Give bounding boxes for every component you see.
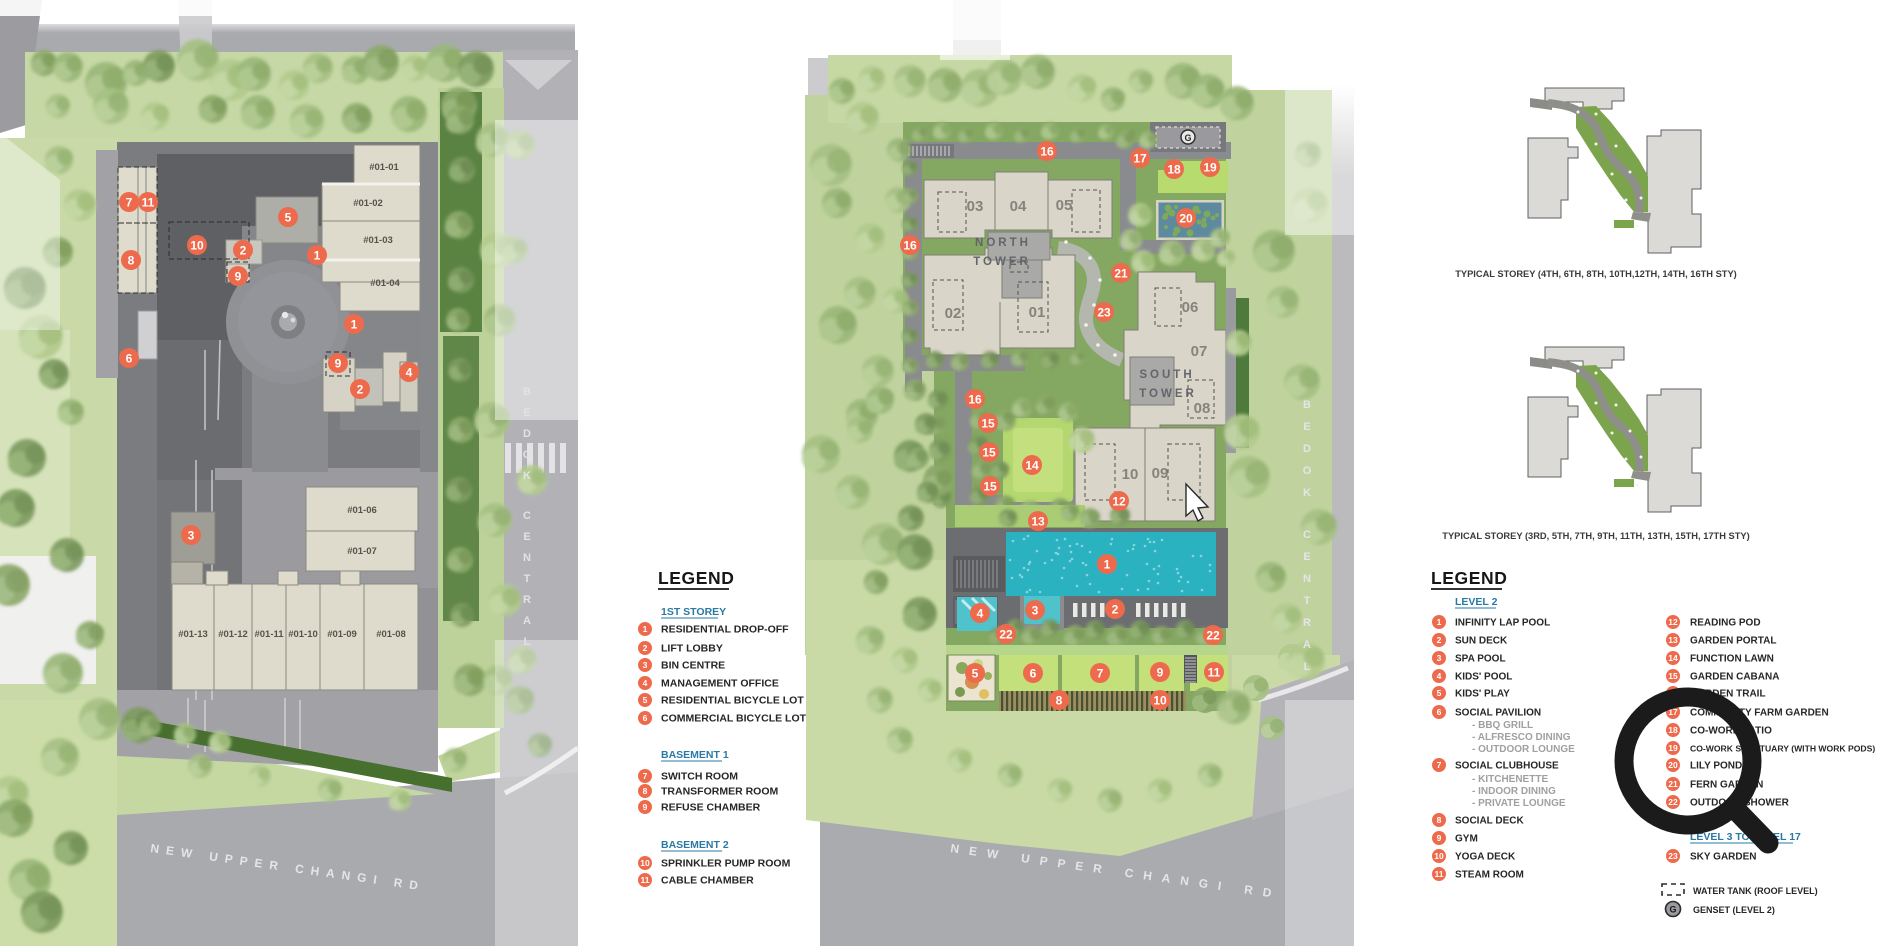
svg-text:LEVEL 2: LEVEL 2 [1455, 596, 1498, 608]
svg-text:MANAGEMENT OFFICE: MANAGEMENT OFFICE [661, 678, 779, 690]
svg-text:- KITCHENETTE: - KITCHENETTE [1472, 774, 1548, 785]
svg-text:TYPICAL STOREY (3RD, 5TH, 7TH,: TYPICAL STOREY (3RD, 5TH, 7TH, 9TH, 11TH… [1442, 531, 1749, 541]
svg-text:22: 22 [1206, 628, 1220, 642]
svg-text:22: 22 [999, 627, 1013, 641]
svg-text:8: 8 [643, 786, 648, 796]
svg-text:6: 6 [1437, 707, 1442, 717]
svg-text:21: 21 [1668, 779, 1678, 789]
svg-text:TOWER: TOWER [973, 256, 1031, 268]
svg-text:K: K [1303, 487, 1311, 499]
svg-text:5: 5 [285, 210, 292, 224]
svg-text:D: D [1303, 443, 1311, 455]
svg-text:LEGEND: LEGEND [658, 568, 735, 588]
svg-text:O: O [1303, 465, 1312, 477]
svg-text:E: E [1303, 551, 1310, 563]
svg-text:10: 10 [1153, 693, 1167, 707]
svg-text:05: 05 [1056, 197, 1073, 214]
svg-text:11: 11 [1208, 665, 1221, 679]
svg-text:SKY GARDEN: SKY GARDEN [1690, 852, 1757, 863]
svg-text:STEAM ROOM: STEAM ROOM [1455, 870, 1524, 881]
svg-text:23: 23 [1668, 851, 1678, 861]
svg-text:9: 9 [1437, 833, 1442, 843]
svg-text:9: 9 [335, 356, 342, 370]
svg-text:CO-WORK SANCTUARY (WITH WORK P: CO-WORK SANCTUARY (WITH WORK PODS) [1690, 744, 1875, 754]
svg-text:REFUSE CHAMBER: REFUSE CHAMBER [661, 802, 761, 814]
svg-text:1: 1 [1104, 557, 1111, 571]
svg-text:4: 4 [977, 606, 984, 620]
svg-text:INFINITY LAP POOL: INFINITY LAP POOL [1455, 618, 1550, 629]
svg-text:E: E [523, 407, 530, 419]
svg-text:#01-01: #01-01 [369, 162, 399, 173]
svg-text:20: 20 [1179, 211, 1193, 225]
svg-text:- OUTDOOR LOUNGE: - OUTDOOR LOUNGE [1472, 744, 1575, 755]
svg-text:23: 23 [1097, 305, 1111, 319]
svg-text:16: 16 [1040, 144, 1054, 158]
svg-text:SOUTH: SOUTH [1139, 369, 1194, 381]
svg-text:NORTH: NORTH [975, 237, 1031, 249]
svg-text:RESIDENTIAL DROP-OFF: RESIDENTIAL DROP-OFF [661, 624, 789, 636]
svg-text:KIDS' PLAY: KIDS' PLAY [1455, 689, 1510, 700]
svg-text:18: 18 [1167, 162, 1181, 176]
svg-text:LIFT LOBBY: LIFT LOBBY [661, 643, 723, 655]
svg-text:7: 7 [643, 771, 648, 781]
svg-text:#01-07: #01-07 [347, 546, 377, 557]
svg-text:9: 9 [1157, 665, 1164, 679]
svg-text:C: C [523, 510, 531, 522]
svg-text:3: 3 [1032, 603, 1039, 617]
svg-text:04: 04 [1010, 198, 1027, 215]
svg-text:B: B [1303, 399, 1311, 411]
svg-text:SPRINKLER PUMP ROOM: SPRINKLER PUMP ROOM [661, 858, 791, 870]
svg-text:A: A [523, 615, 531, 627]
svg-text:A: A [1303, 639, 1311, 651]
svg-text:3: 3 [1437, 653, 1442, 663]
svg-text:20: 20 [1668, 760, 1678, 770]
svg-text:01: 01 [1029, 304, 1046, 321]
svg-text:CABLE CHAMBER: CABLE CHAMBER [661, 875, 754, 887]
svg-text:16: 16 [968, 392, 982, 406]
svg-text:SOCIAL PAVILION: SOCIAL PAVILION [1455, 708, 1541, 719]
svg-text:2: 2 [240, 243, 247, 257]
svg-text:T: T [524, 573, 531, 585]
svg-text:- PRIVATE LOUNGE: - PRIVATE LOUNGE [1472, 798, 1566, 809]
svg-text:12: 12 [1112, 494, 1126, 508]
svg-text:7: 7 [1097, 666, 1104, 680]
svg-text:15: 15 [983, 479, 997, 493]
svg-text:2: 2 [1437, 635, 1442, 645]
svg-text:14: 14 [1668, 653, 1678, 663]
svg-text:3: 3 [188, 528, 195, 542]
svg-text:#01-08: #01-08 [376, 629, 406, 640]
svg-text:1: 1 [351, 317, 358, 331]
svg-text:19: 19 [1668, 743, 1678, 753]
svg-text:07: 07 [1191, 343, 1208, 360]
svg-text:SUN DECK: SUN DECK [1455, 636, 1508, 647]
svg-text:#01-12: #01-12 [218, 629, 248, 640]
svg-text:11: 11 [641, 875, 650, 885]
svg-text:E: E [1303, 421, 1310, 433]
svg-text:- ALFRESCO DINING: - ALFRESCO DINING [1472, 732, 1571, 743]
svg-text:T: T [1304, 595, 1311, 607]
svg-text:10: 10 [1434, 851, 1444, 861]
svg-text:LILY POND: LILY POND [1690, 761, 1742, 772]
svg-text:03: 03 [967, 198, 984, 215]
svg-text:KIDS' POOL: KIDS' POOL [1455, 672, 1512, 683]
svg-text:B: B [523, 386, 531, 398]
svg-text:TRANSFORMER ROOM: TRANSFORMER ROOM [661, 786, 778, 798]
svg-text:G: G [1184, 133, 1191, 143]
svg-text:8: 8 [1437, 815, 1442, 825]
svg-text:G: G [1669, 905, 1676, 915]
svg-text:SPA POOL: SPA POOL [1455, 654, 1506, 665]
svg-text:R: R [1303, 617, 1311, 629]
svg-text:2: 2 [643, 643, 648, 653]
svg-text:22: 22 [1668, 797, 1678, 807]
svg-text:C: C [1303, 529, 1311, 541]
svg-text:1ST STOREY: 1ST STOREY [661, 606, 726, 618]
svg-text:13: 13 [1031, 514, 1045, 528]
svg-text:5: 5 [972, 666, 979, 680]
svg-text:4: 4 [1437, 671, 1442, 681]
svg-text:1: 1 [643, 624, 648, 634]
svg-text:09: 09 [1152, 465, 1169, 482]
svg-text:#01-06: #01-06 [347, 505, 377, 516]
svg-text:15: 15 [982, 445, 996, 459]
svg-text:SOCIAL DECK: SOCIAL DECK [1455, 816, 1524, 827]
svg-text:8: 8 [1056, 693, 1063, 707]
svg-text:FUNCTION LAWN: FUNCTION LAWN [1690, 654, 1774, 665]
svg-text:15: 15 [1668, 671, 1678, 681]
svg-text:10: 10 [1122, 466, 1139, 483]
svg-text:18: 18 [1668, 725, 1678, 735]
svg-text:BASEMENT 1: BASEMENT 1 [661, 749, 729, 761]
svg-text:N: N [1303, 573, 1311, 585]
svg-text:17: 17 [1133, 151, 1147, 165]
svg-text:6: 6 [643, 713, 648, 723]
svg-text:2: 2 [357, 382, 364, 396]
svg-text:#01-09: #01-09 [327, 629, 357, 640]
svg-text:RESIDENTIAL BICYCLE LOT: RESIDENTIAL BICYCLE LOT [661, 695, 804, 707]
svg-text:L: L [1304, 661, 1311, 673]
svg-text:O: O [523, 449, 532, 461]
svg-text:BIN CENTRE: BIN CENTRE [661, 660, 725, 672]
svg-text:6: 6 [1030, 666, 1037, 680]
svg-text:GENSET (LEVEL 2): GENSET (LEVEL 2) [1693, 905, 1775, 915]
svg-text:12: 12 [1668, 617, 1678, 627]
svg-text:#01-03: #01-03 [363, 235, 393, 246]
svg-text:5: 5 [643, 695, 648, 705]
svg-text:11: 11 [1435, 869, 1444, 879]
svg-text:SWITCH ROOM: SWITCH ROOM [661, 771, 738, 783]
svg-text:#01-04: #01-04 [370, 278, 400, 289]
svg-text:TOWER: TOWER [1139, 388, 1197, 400]
svg-text:14: 14 [1025, 458, 1039, 472]
svg-text:D: D [523, 428, 531, 440]
svg-text:11: 11 [142, 195, 155, 209]
svg-text:3: 3 [643, 660, 648, 670]
svg-text:GARDEN PORTAL: GARDEN PORTAL [1690, 636, 1776, 647]
svg-text:1: 1 [1437, 617, 1442, 627]
svg-text:21: 21 [1114, 266, 1128, 280]
svg-text:E: E [523, 531, 530, 543]
svg-text:13: 13 [1668, 635, 1678, 645]
svg-text:7: 7 [126, 195, 133, 209]
svg-text:WATER TANK (ROOF LEVEL): WATER TANK (ROOF LEVEL) [1693, 886, 1818, 896]
svg-text:02: 02 [945, 305, 962, 322]
svg-text:LEGEND: LEGEND [1431, 568, 1508, 588]
svg-text:#01-13: #01-13 [178, 629, 208, 640]
svg-text:COMMERCIAL BICYCLE LOT: COMMERCIAL BICYCLE LOT [661, 713, 807, 725]
svg-text:06: 06 [1182, 299, 1199, 316]
svg-text:6: 6 [126, 351, 133, 365]
svg-text:10: 10 [640, 858, 650, 868]
svg-text:L: L [524, 636, 531, 648]
svg-text:- BBQ GRILL: - BBQ GRILL [1472, 720, 1533, 731]
svg-text:19: 19 [1203, 160, 1217, 174]
svg-text:08: 08 [1194, 400, 1211, 417]
svg-text:GARDEN CABANA: GARDEN CABANA [1690, 672, 1779, 683]
svg-text:- INDOOR DINING: - INDOOR DINING [1472, 786, 1556, 797]
svg-text:TYPICAL STOREY (4TH, 6TH, 8TH,: TYPICAL STOREY (4TH, 6TH, 8TH, 10TH,12TH… [1455, 269, 1737, 279]
svg-text:7: 7 [1437, 760, 1442, 770]
svg-text:K: K [523, 470, 531, 482]
svg-text:#01-11: #01-11 [254, 629, 284, 640]
svg-text:YOGA DECK: YOGA DECK [1455, 852, 1516, 863]
svg-text:16: 16 [903, 238, 917, 252]
svg-text:SOCIAL CLUBHOUSE: SOCIAL CLUBHOUSE [1455, 761, 1559, 772]
svg-text:1: 1 [314, 248, 321, 262]
svg-text:4: 4 [406, 365, 413, 379]
svg-text:#01-10: #01-10 [288, 629, 318, 640]
svg-text:8: 8 [128, 253, 135, 267]
svg-text:4: 4 [643, 678, 648, 688]
svg-text:N: N [523, 552, 531, 564]
svg-text:GYM: GYM [1455, 834, 1478, 845]
svg-text:15: 15 [981, 416, 995, 430]
svg-text:5: 5 [1437, 688, 1442, 698]
svg-text:9: 9 [643, 802, 648, 812]
svg-text:R: R [523, 594, 531, 606]
svg-text:BASEMENT 2: BASEMENT 2 [661, 839, 729, 851]
svg-text:2: 2 [1112, 602, 1119, 616]
svg-text:READING POD: READING POD [1690, 618, 1761, 629]
svg-text:#01-02: #01-02 [353, 198, 383, 209]
svg-text:9: 9 [235, 269, 242, 283]
svg-text:10: 10 [190, 238, 204, 252]
